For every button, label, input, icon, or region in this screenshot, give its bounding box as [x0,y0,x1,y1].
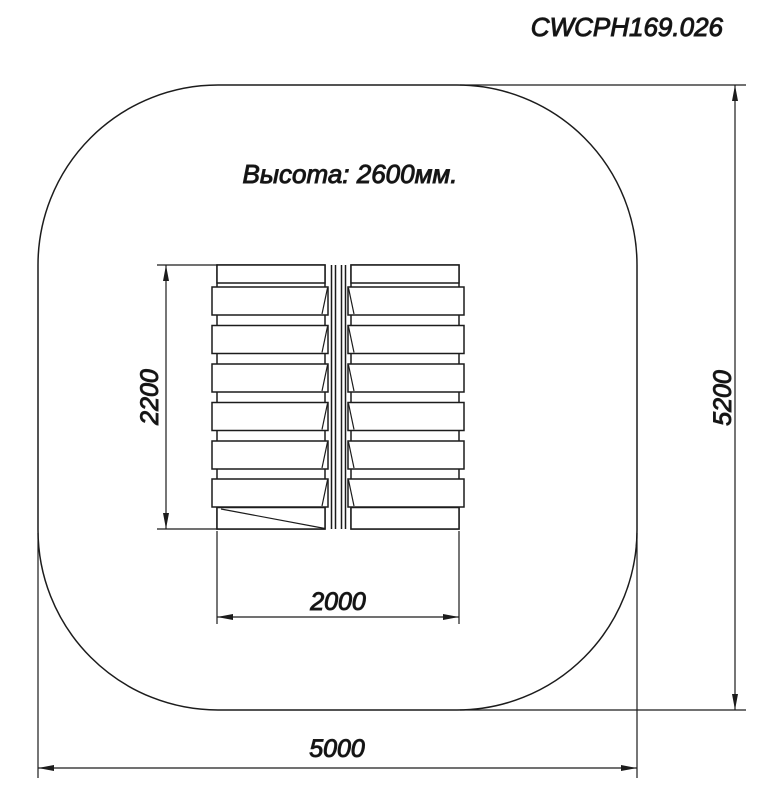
arrowhead-down [163,513,169,529]
dimension-label-2000: 2000 [309,588,366,616]
arrowhead-right [443,614,459,620]
left-slat [212,441,328,469]
right-slat [348,441,464,469]
arrowhead-up [732,85,738,101]
left-slat [212,479,328,507]
dimension-equipment-depth: 2200 [136,265,218,529]
right-slat [348,364,464,392]
height-note: Высота: 2600мм. [243,159,458,189]
right-slat [348,326,464,354]
equipment-top-view [212,265,464,529]
left-slat [212,326,328,354]
left-column-slats [212,265,328,529]
arrowhead-left [217,614,233,620]
left-slat [212,287,328,315]
arrowhead-left [38,765,54,771]
drawing-code: CWCPH169.026 [531,12,724,42]
right-slat [348,287,464,315]
right-bottom-strip [351,508,459,530]
arrowhead-right [621,765,637,771]
drawing-content: 2200 2000 5200 [38,12,746,778]
left-top-strip [217,265,325,283]
center-rails [332,265,346,529]
dimension-label-5000: 5000 [309,735,365,763]
dimension-equipment-width: 2000 [217,531,459,624]
right-top-strip [351,265,459,283]
arrowhead-down [732,694,738,710]
arrowhead-up [163,265,169,281]
right-slat [348,479,464,507]
drawing-canvas: 2200 2000 5200 [0,0,765,790]
dimension-zone-depth: 5200 [460,85,746,710]
technical-drawing-sheet: 2200 2000 5200 [0,0,765,790]
right-slat [348,403,464,431]
dimension-label-2200: 2200 [136,369,164,426]
left-slat [212,403,328,431]
dimension-label-5200: 5200 [709,370,737,426]
right-column-slats [348,265,464,529]
left-slat [212,364,328,392]
dimension-zone-width: 5000 [38,533,637,778]
